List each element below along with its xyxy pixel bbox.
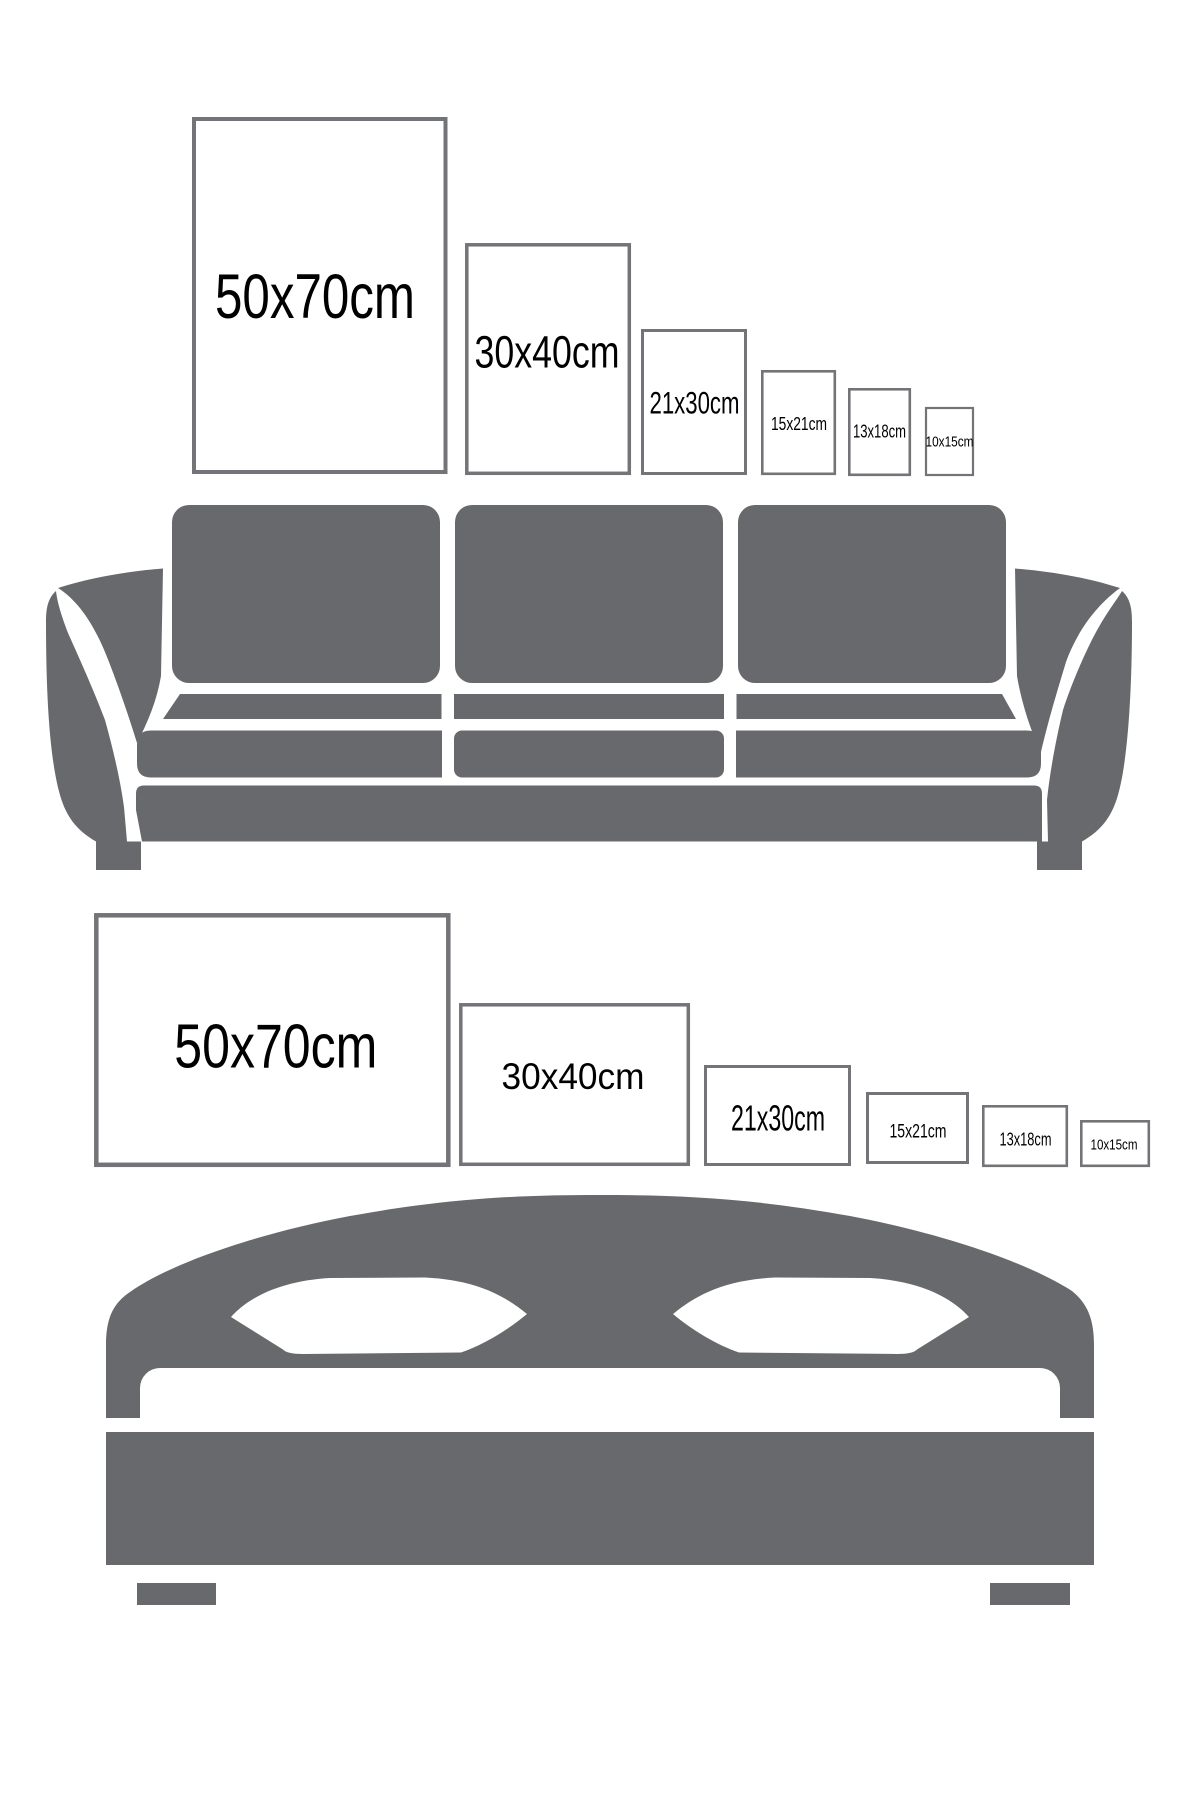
svg-text:21x30cm: 21x30cm xyxy=(731,1098,825,1139)
svg-text:15x21cm: 15x21cm xyxy=(771,414,827,434)
svg-text:30x40cm: 30x40cm xyxy=(475,327,620,378)
svg-text:15x21cm: 15x21cm xyxy=(890,1122,947,1143)
svg-text:13x18cm: 13x18cm xyxy=(1000,1130,1052,1150)
svg-text:10x15cm: 10x15cm xyxy=(926,435,974,451)
svg-text:13x18cm: 13x18cm xyxy=(853,422,906,442)
svg-text:21x30cm: 21x30cm xyxy=(650,385,740,421)
svg-text:30x40cm: 30x40cm xyxy=(502,1055,645,1097)
svg-text:10x15cm: 10x15cm xyxy=(1091,1138,1138,1154)
svg-text:50x70cm: 50x70cm xyxy=(215,262,415,332)
svg-text:50x70cm: 50x70cm xyxy=(174,1013,377,1082)
